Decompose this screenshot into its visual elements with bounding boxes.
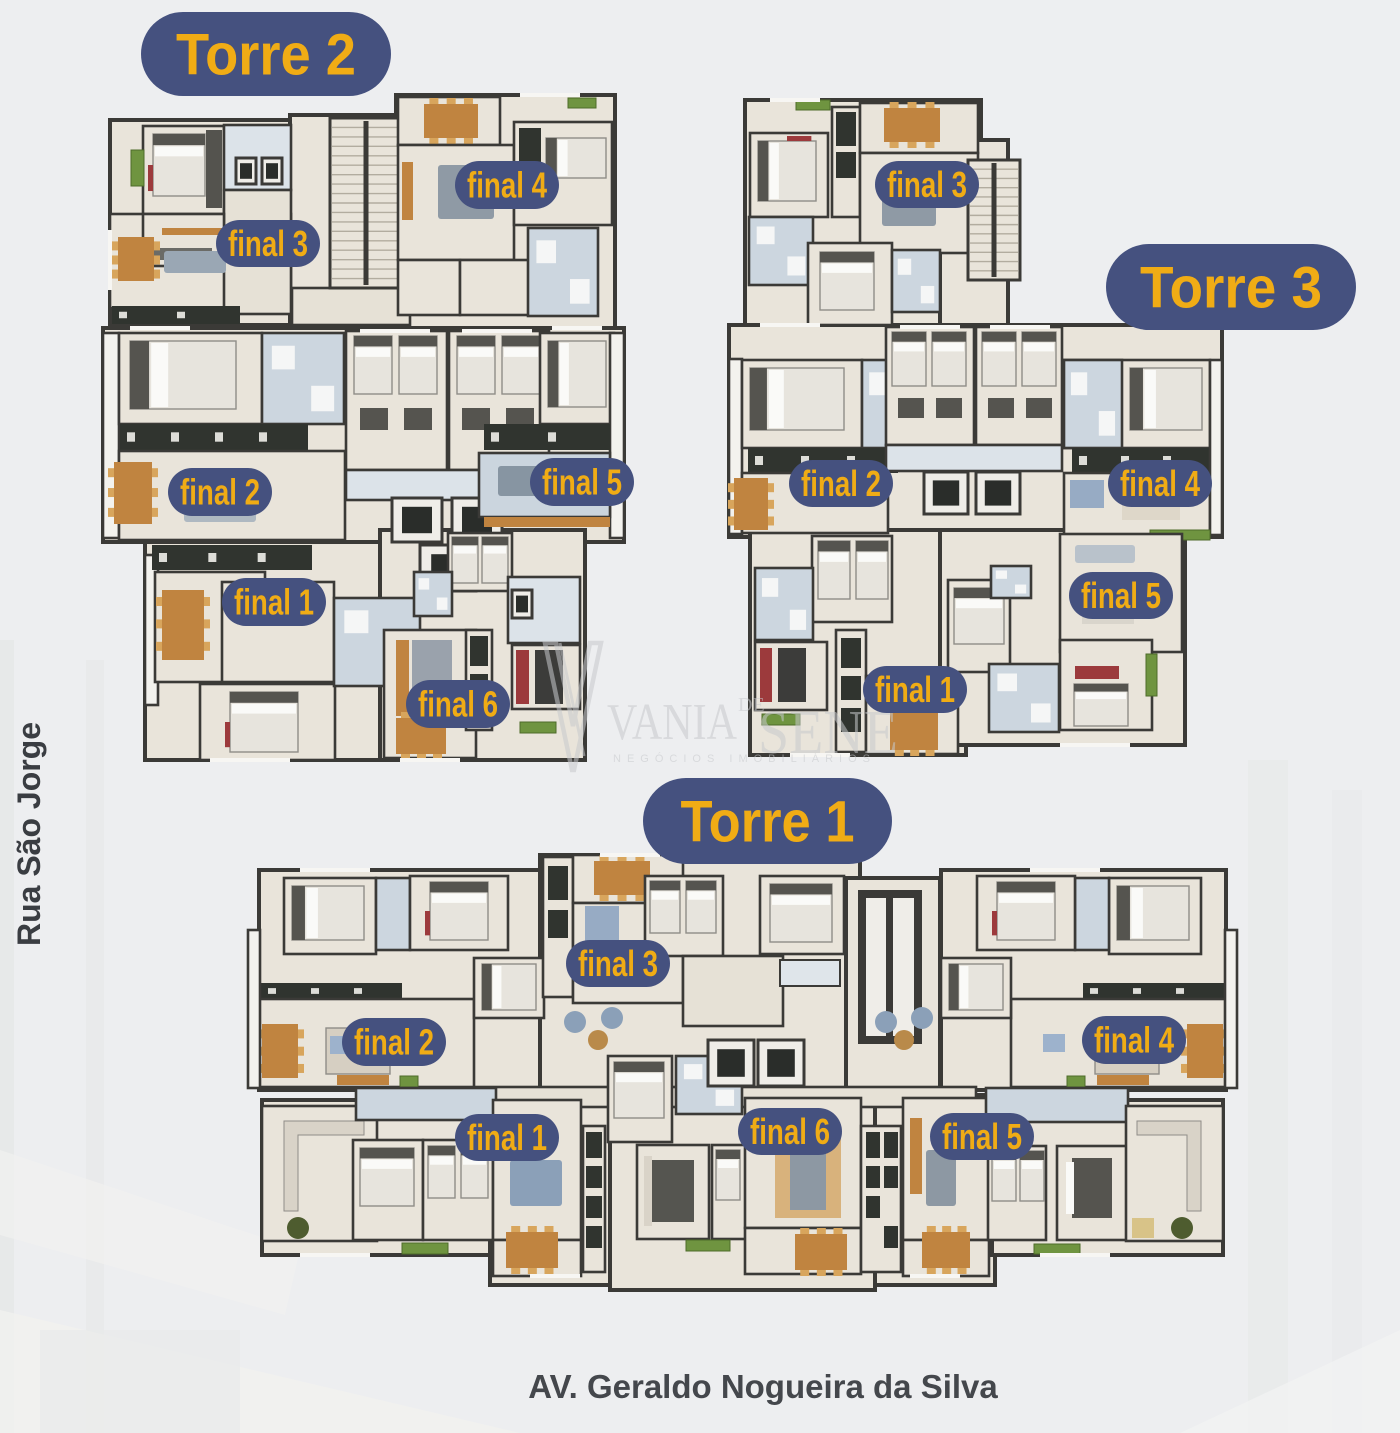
- svg-text:final 1: final 1: [234, 582, 314, 623]
- svg-text:final 4: final 4: [1094, 1020, 1174, 1061]
- svg-text:Torre 3: Torre 3: [1140, 255, 1322, 320]
- svg-text:final 3: final 3: [887, 164, 967, 205]
- svg-text:Rua São Jorge: Rua São Jorge: [11, 722, 47, 946]
- svg-text:AV. Geraldo Nogueira da Silva: AV. Geraldo Nogueira da Silva: [528, 1368, 998, 1405]
- svg-text:final 4: final 4: [1120, 463, 1200, 504]
- svg-text:VANIA: VANIA: [607, 694, 737, 751]
- svg-text:Torre 2: Torre 2: [176, 22, 356, 87]
- svg-text:final 3: final 3: [228, 223, 308, 264]
- svg-text:final 5: final 5: [1081, 575, 1161, 616]
- svg-text:final 2: final 2: [801, 463, 881, 504]
- svg-text:final 1: final 1: [467, 1117, 547, 1158]
- svg-text:final 4: final 4: [467, 165, 547, 206]
- svg-text:final 6: final 6: [418, 684, 498, 725]
- svg-text:final 3: final 3: [578, 943, 658, 984]
- svg-text:final 2: final 2: [354, 1022, 434, 1063]
- svg-text:Torre 1: Torre 1: [681, 789, 855, 854]
- svg-text:final 2: final 2: [180, 472, 260, 513]
- svg-text:final 1: final 1: [875, 669, 955, 710]
- svg-text:final 5: final 5: [942, 1116, 1022, 1157]
- svg-text:final 6: final 6: [750, 1111, 830, 1152]
- svg-text:final 5: final 5: [542, 462, 622, 503]
